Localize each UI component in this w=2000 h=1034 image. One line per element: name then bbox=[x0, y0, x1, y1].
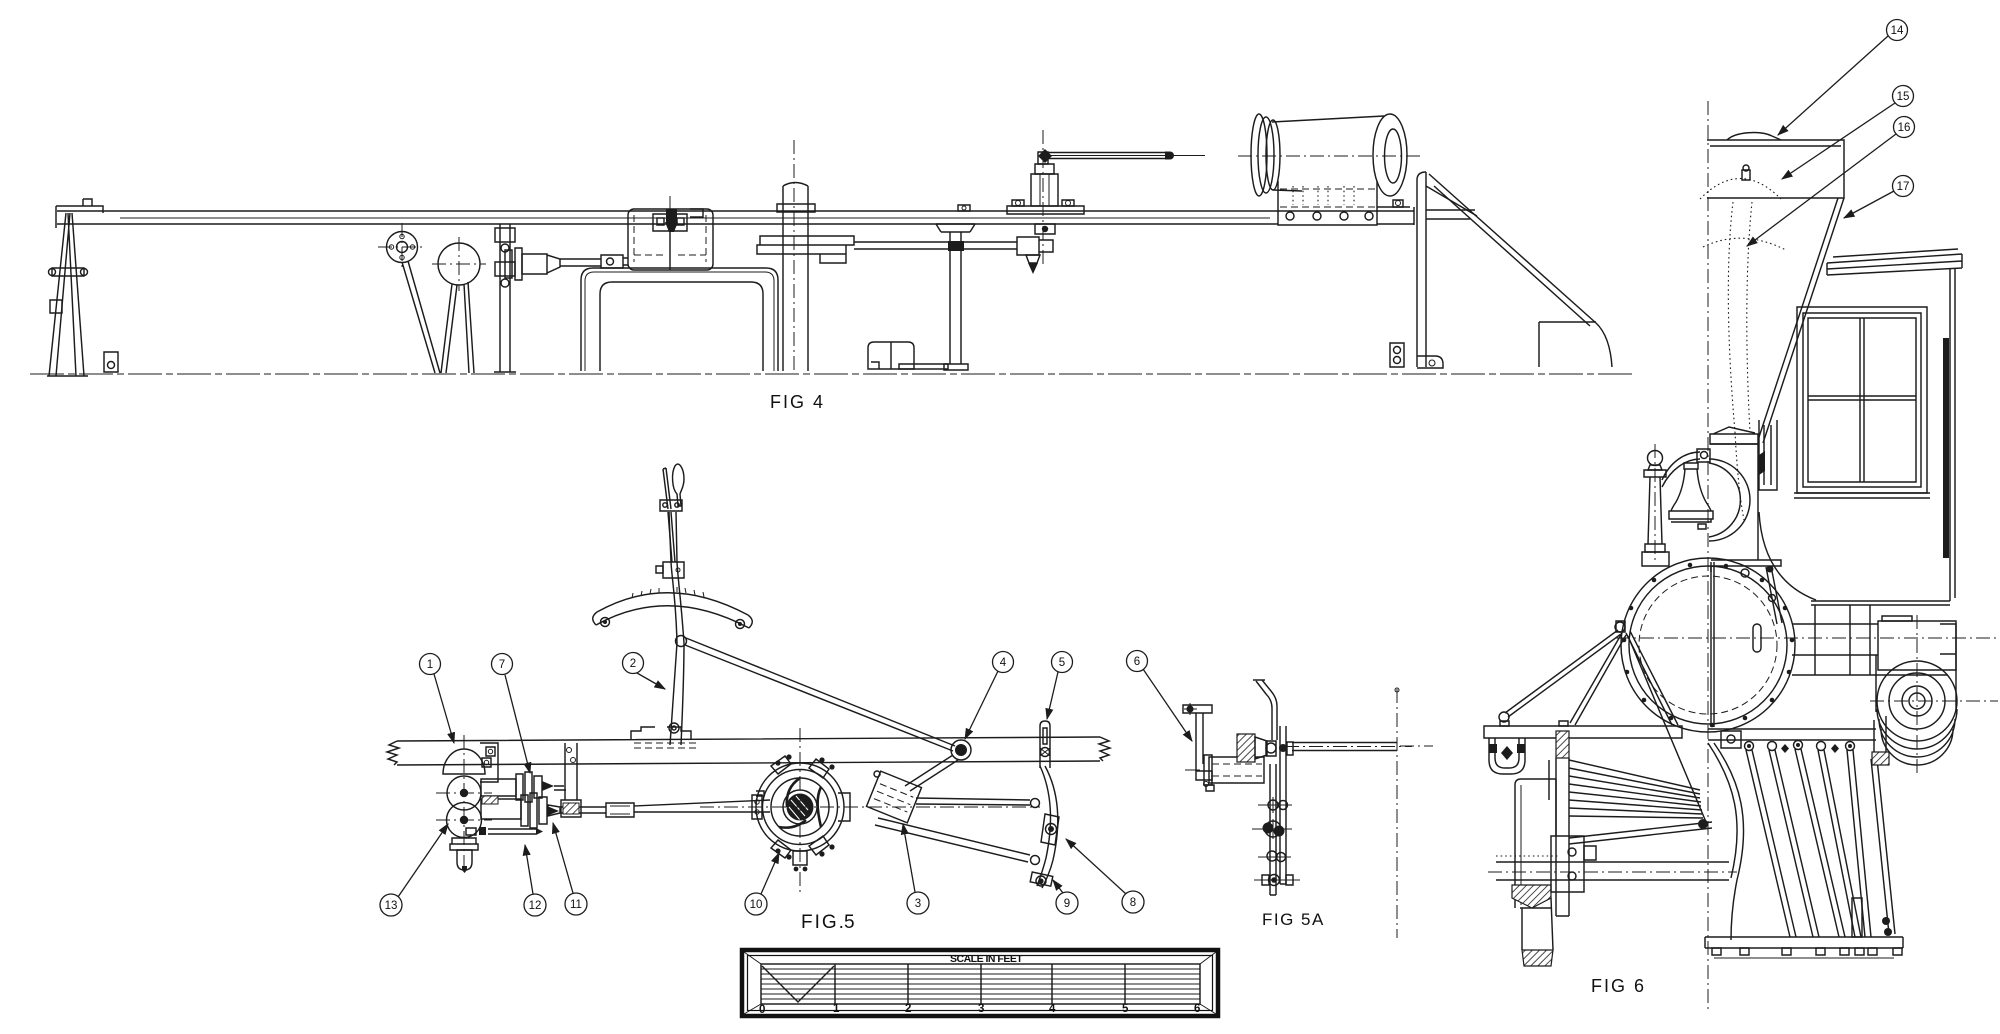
svg-text:0: 0 bbox=[759, 1004, 765, 1016]
svg-text:6: 6 bbox=[1194, 1003, 1200, 1015]
svg-text:11: 11 bbox=[570, 899, 582, 911]
svg-text:2: 2 bbox=[905, 1003, 911, 1015]
svg-text:1: 1 bbox=[833, 1003, 840, 1015]
svg-text:4: 4 bbox=[1000, 657, 1007, 669]
svg-text:SCALE IN FEET: SCALE IN FEET bbox=[950, 953, 1023, 965]
svg-text:7: 7 bbox=[499, 659, 505, 671]
svg-text:17: 17 bbox=[1897, 181, 1910, 193]
svg-text:3: 3 bbox=[978, 1003, 984, 1015]
svg-text:12: 12 bbox=[529, 900, 542, 912]
svg-text:5: 5 bbox=[844, 912, 855, 933]
svg-text:16: 16 bbox=[1898, 122, 1911, 134]
svg-text:5: 5 bbox=[1059, 657, 1065, 669]
svg-text:3: 3 bbox=[915, 898, 921, 910]
svg-text:FIG 5A: FIG 5A bbox=[1262, 910, 1325, 929]
svg-text:2: 2 bbox=[630, 658, 636, 670]
svg-text:9: 9 bbox=[1064, 898, 1070, 910]
svg-text:10: 10 bbox=[750, 899, 763, 911]
svg-text:15: 15 bbox=[1897, 91, 1910, 103]
svg-text:8: 8 bbox=[1130, 897, 1136, 909]
svg-text:13: 13 bbox=[385, 900, 398, 912]
svg-text:FIG.: FIG. bbox=[801, 912, 846, 933]
svg-text:1: 1 bbox=[427, 659, 433, 671]
svg-text:4: 4 bbox=[1049, 1003, 1056, 1015]
svg-text:FIG 6: FIG 6 bbox=[1591, 976, 1646, 996]
svg-text:FIG 4: FIG 4 bbox=[770, 392, 825, 412]
svg-text:5: 5 bbox=[1122, 1003, 1129, 1015]
svg-text:14: 14 bbox=[1891, 25, 1904, 37]
svg-text:6: 6 bbox=[1134, 656, 1140, 668]
